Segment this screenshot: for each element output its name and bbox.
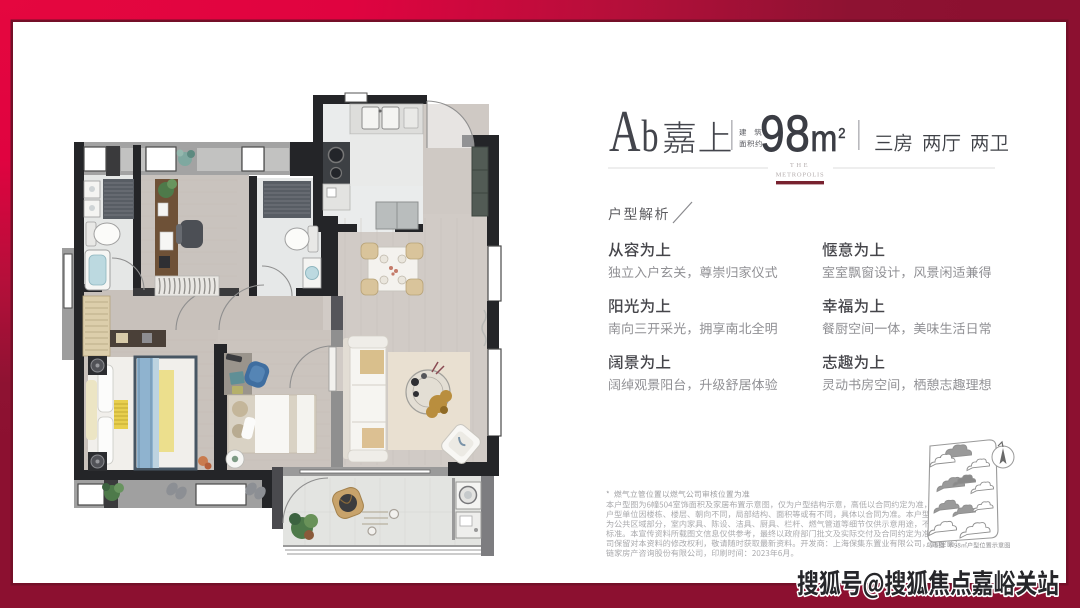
svg-text:b: b [642,110,659,161]
svg-text:A: A [609,100,641,165]
svg-text:THE: THE [790,162,810,169]
svg-text:METROPOLIS: METROPOLIS [776,172,825,179]
svg-text:m: m [810,119,837,160]
svg-text:2: 2 [838,124,845,141]
svg-text:98: 98 [760,106,810,163]
